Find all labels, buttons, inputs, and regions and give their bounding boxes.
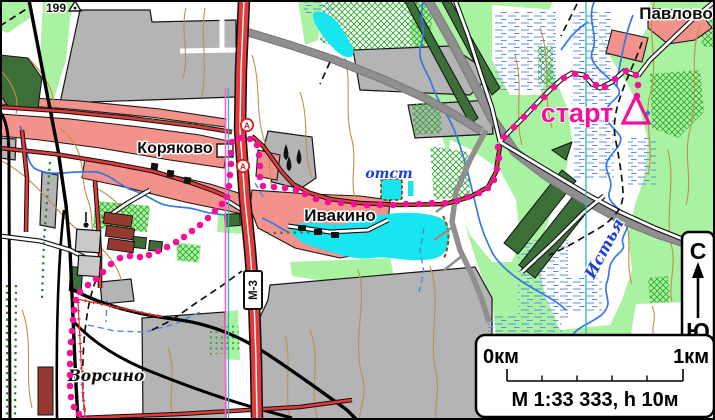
elevation-label: 199	[46, 1, 66, 15]
bus-stop-icon: А	[241, 119, 253, 131]
m3-road-sign: М-3	[244, 271, 262, 309]
small-pond	[408, 181, 414, 196]
bus-stop-letter: А	[240, 161, 246, 171]
scale-panel: 0км 1км М 1:33 333, h 10м	[476, 335, 714, 417]
settling-pond	[381, 179, 402, 200]
m3-sign-text: М-3	[248, 280, 260, 300]
bus-stop-icon: А	[237, 160, 249, 172]
pond-label: отст	[365, 166, 413, 182]
vorsino-label: Ворсино	[67, 366, 145, 385]
topographic-map: А А 199 Павлово Коряково Ивакино Ворсино…	[0, 0, 715, 420]
scale-text: М 1:33 333, h 10м	[511, 389, 678, 411]
bus-stop-letter: А	[244, 120, 250, 130]
scale-right-label: 1км	[673, 346, 709, 368]
compass-north-label: С	[690, 238, 707, 264]
ivakino-label: Ивакино	[304, 206, 376, 225]
koryakovo-label: Коряково	[137, 140, 213, 157]
pavlovo-label: Павлово	[639, 4, 712, 23]
compass-panel: С Ю	[682, 232, 714, 344]
start-label: старт	[541, 98, 614, 128]
scale-left-label: 0км	[483, 346, 519, 368]
map-screenshot: А А 199 Павлово Коряково Ивакино Ворсино…	[0, 0, 715, 420]
